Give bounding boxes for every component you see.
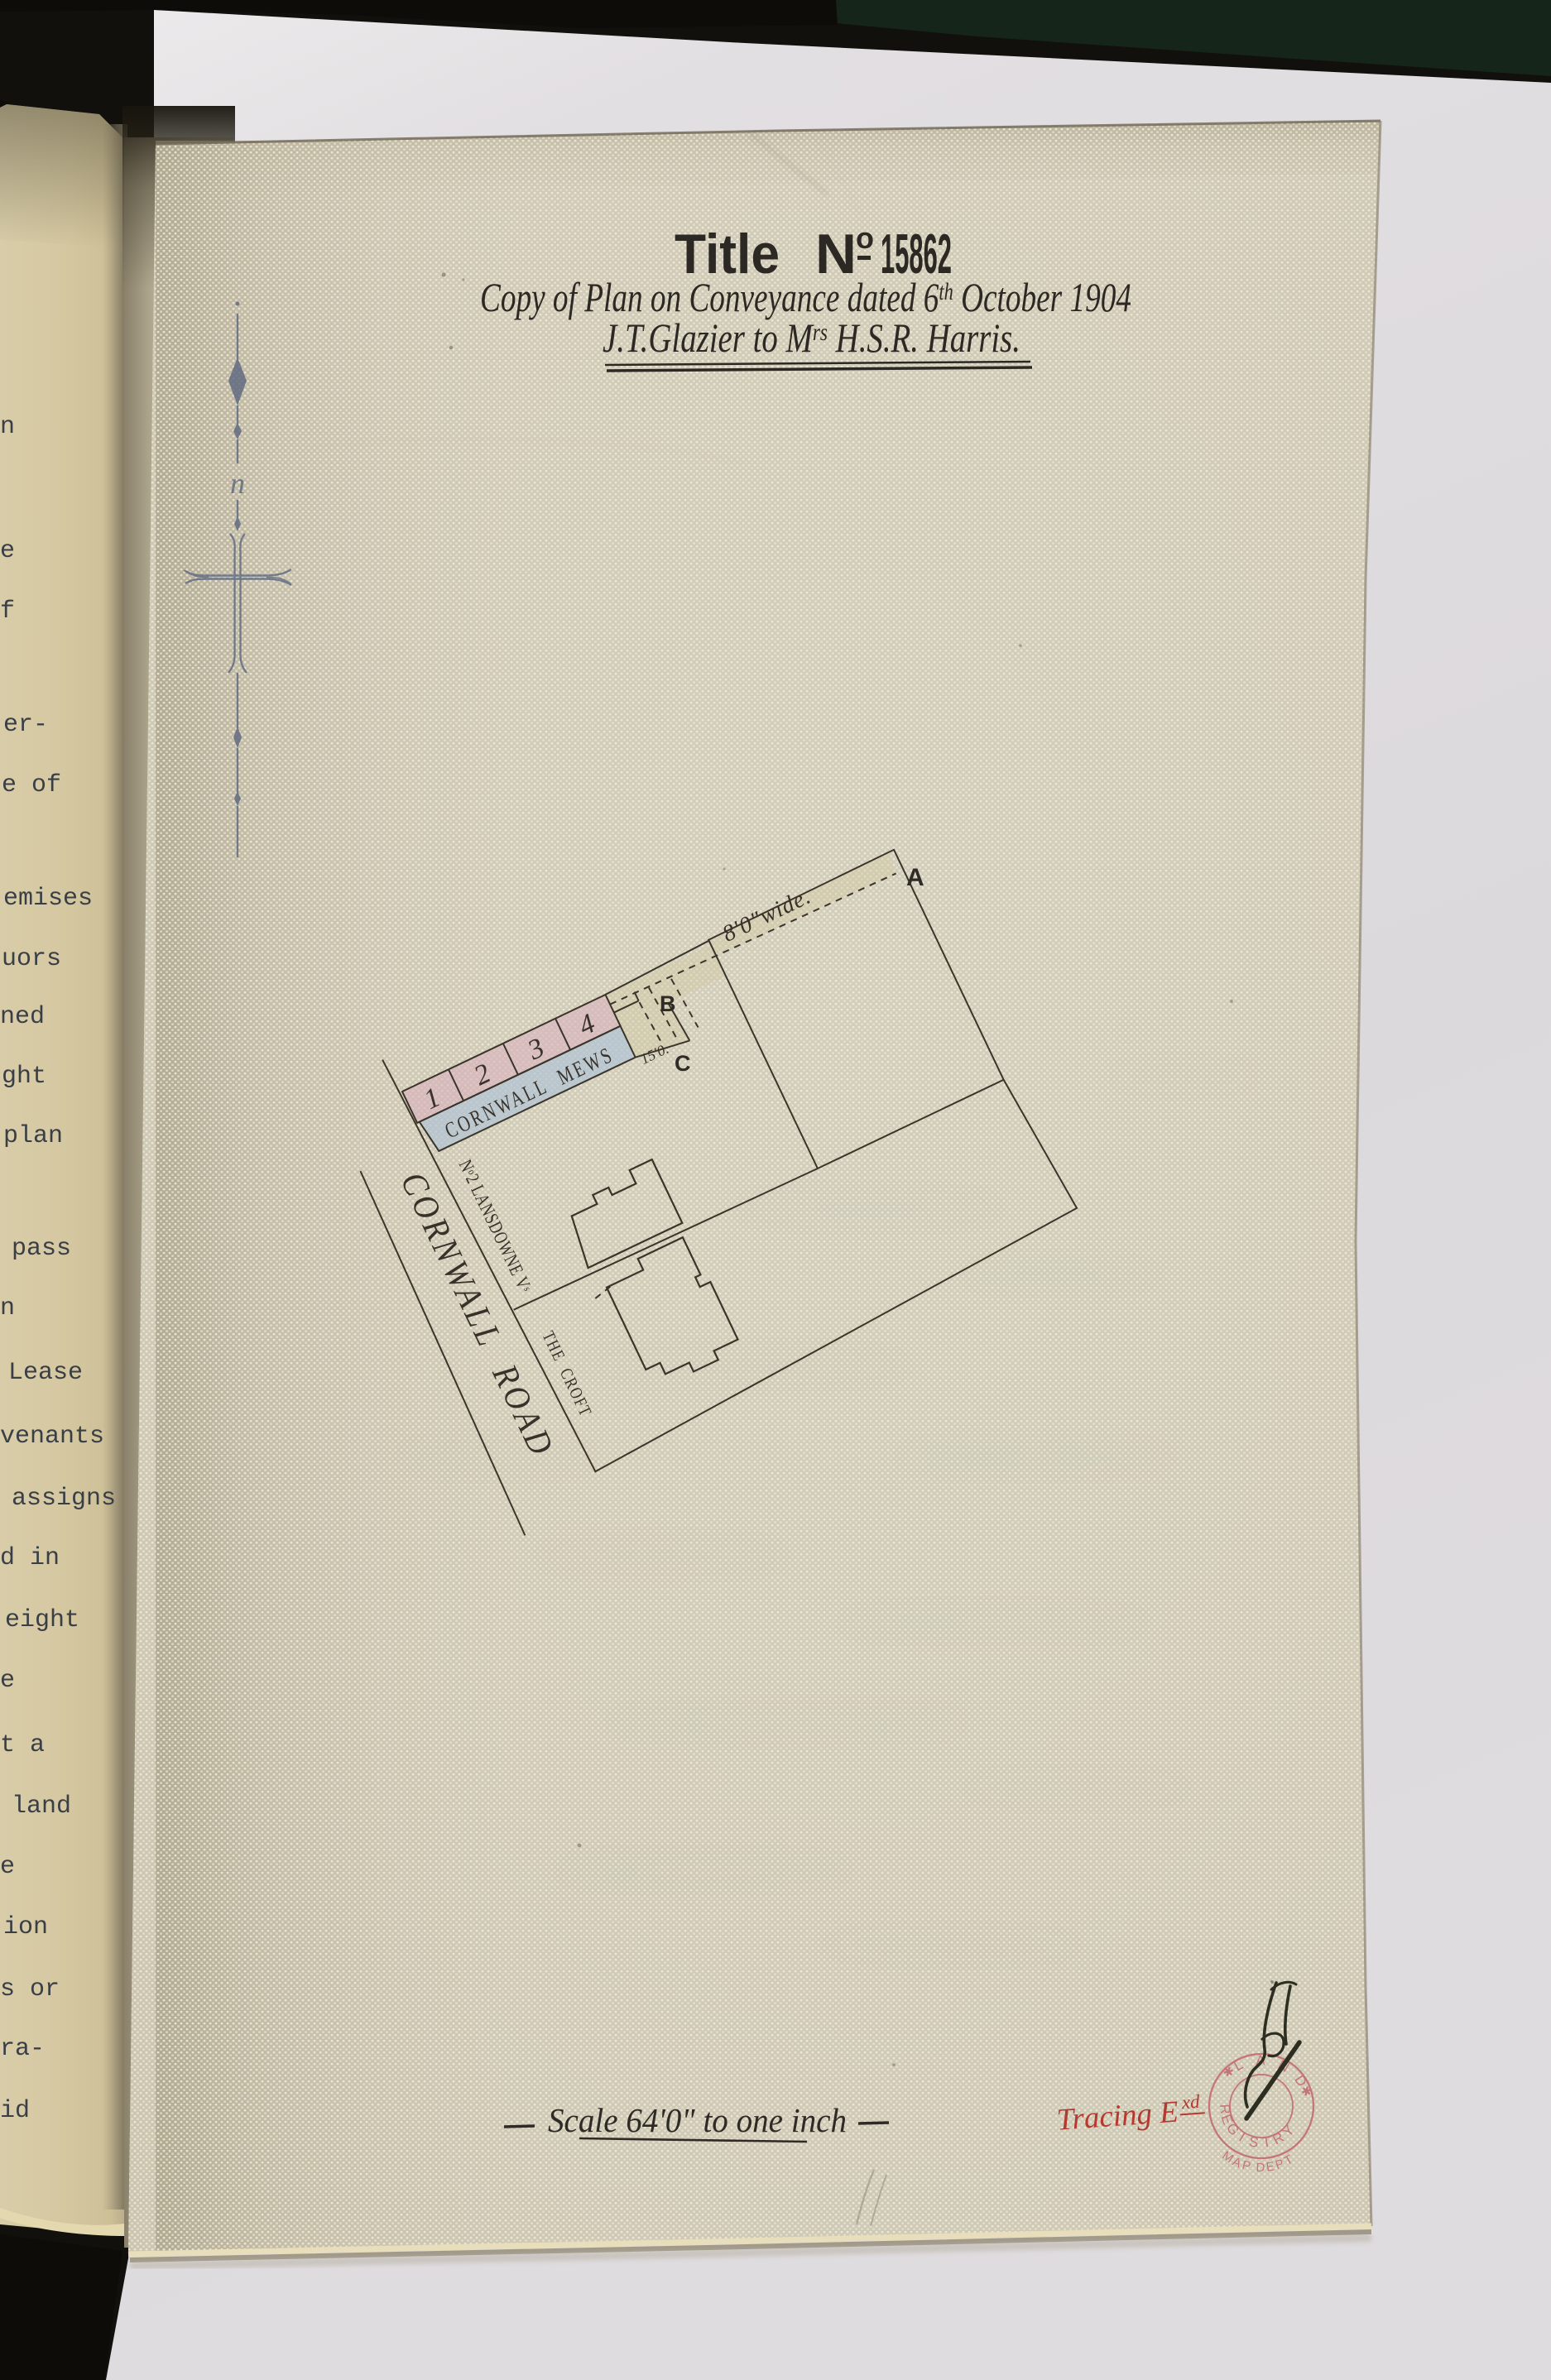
- svg-text:ion: ion: [3, 1913, 48, 1941]
- svg-text:e: e: [0, 1853, 15, 1881]
- svg-text:eight: eight: [5, 1606, 79, 1634]
- svg-text:Scale 64'0" to one inch: Scale 64'0" to one inch: [548, 2101, 847, 2139]
- svg-text:n: n: [230, 467, 245, 500]
- svg-text:C: C: [675, 1051, 691, 1076]
- svg-text:id: id: [0, 2097, 30, 2125]
- svg-text:Copy of Plan on Conveyance dat: Copy of Plan on Conveyance dated 6th Oct…: [480, 274, 1131, 320]
- svg-text:e: e: [0, 1667, 15, 1695]
- svg-text:ght: ght: [2, 1063, 46, 1091]
- svg-text:pass: pass: [12, 1235, 71, 1263]
- svg-text:s or: s or: [0, 1975, 60, 2003]
- svg-text:assigns: assigns: [12, 1485, 116, 1513]
- svg-text:ra-: ra-: [0, 2035, 45, 2063]
- svg-text:e: e: [0, 537, 15, 565]
- svg-text:n: n: [0, 413, 15, 441]
- svg-text:uors: uors: [2, 945, 61, 973]
- svg-text:J.T.Glazier to Mrs H.S.R. Harr: J.T.Glazier to Mrs H.S.R. Harris.: [603, 314, 1020, 361]
- svg-text:ned: ned: [0, 1003, 45, 1031]
- svg-text:plan: plan: [3, 1122, 63, 1150]
- svg-text:t a: t a: [0, 1731, 45, 1759]
- svg-text:d in: d in: [0, 1544, 60, 1572]
- svg-text:f: f: [0, 597, 15, 626]
- svg-text:land: land: [12, 1792, 71, 1821]
- svg-text:emises: emises: [3, 885, 93, 913]
- svg-text:n: n: [0, 1294, 15, 1322]
- svg-text:xd: xd: [1180, 2091, 1201, 2114]
- svg-text:er-: er-: [3, 711, 48, 739]
- svg-text:e of: e of: [2, 771, 61, 799]
- svg-text:A: A: [906, 864, 924, 891]
- svg-text:D: D: [1256, 2161, 1265, 2175]
- svg-text:B: B: [660, 991, 676, 1016]
- svg-text:venants: venants: [0, 1423, 104, 1451]
- svg-text:Lease: Lease: [8, 1359, 83, 1387]
- svg-text:o: o: [856, 221, 874, 255]
